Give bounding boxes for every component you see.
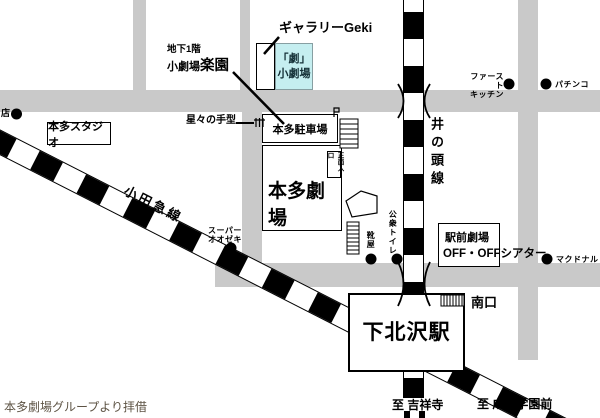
gallery-geki-label: ギャラリーGeki (279, 21, 372, 36)
pachinko-dot (541, 79, 552, 90)
to-kichijoji-label: 至 吉祥寺 (392, 399, 443, 413)
rakuen-prefix-label: 小劇場 (167, 61, 200, 73)
shimokitazawa-theater-map: 下北沢駅 「劇」 小劇場 本多スタジオ 本多駐車場 本多劇場 正面入口 駅前劇場… (0, 0, 600, 418)
crossing-mark-top-left (398, 84, 404, 118)
crossing-mark-bottom-left (398, 262, 404, 306)
pachinko-label: パチンコ (555, 80, 589, 89)
gallery-geki-pointer-line (264, 37, 279, 54)
to-seijogakuenmae-label: 至 成城学園前 (477, 398, 552, 412)
hoshi-tegata-label: 星々の手型 (186, 115, 236, 127)
shoe-shop-label: 靴屋 (366, 231, 375, 249)
super-ozeki-label: スーパー オオゼキ (208, 226, 242, 244)
rakuen-label: 地下1階 小劇場楽園 (167, 45, 229, 75)
public-toilet-dot (392, 254, 403, 265)
parking-flag-icon (334, 108, 339, 117)
shop-dot (11, 109, 22, 120)
mcdonalds-label: マクドナルド (556, 255, 600, 264)
rakuen-floor-label: 地下1階 (167, 45, 229, 56)
mcdonalds-dot (542, 254, 553, 265)
crossing-mark-bottom-right (425, 262, 431, 306)
south-exit-label: 南口 (471, 296, 497, 311)
kiosk-building-outline (346, 191, 377, 217)
first-kitchen-dot (504, 79, 515, 90)
inokashira-line-label: 井の頭線 (428, 117, 443, 201)
crossing-mark-top-right (425, 84, 431, 118)
stairs-south-exit (441, 295, 464, 306)
public-toilet-label: 公衆トイレ (388, 210, 397, 255)
stairs-parking (340, 119, 358, 148)
stairs-theater-side (347, 222, 359, 254)
first-kitchen-label: ファースト キッチン (470, 72, 504, 100)
rakuen-pointer-line (233, 72, 284, 124)
map-credit: 本多劇場グループより拝借 (4, 398, 147, 415)
shop-cutoff-label: 店 (1, 108, 10, 118)
rakuen-name-label: 楽園 (200, 58, 229, 74)
handprint-mark-icon (254, 118, 265, 127)
shoe-shop-dot (366, 254, 377, 265)
